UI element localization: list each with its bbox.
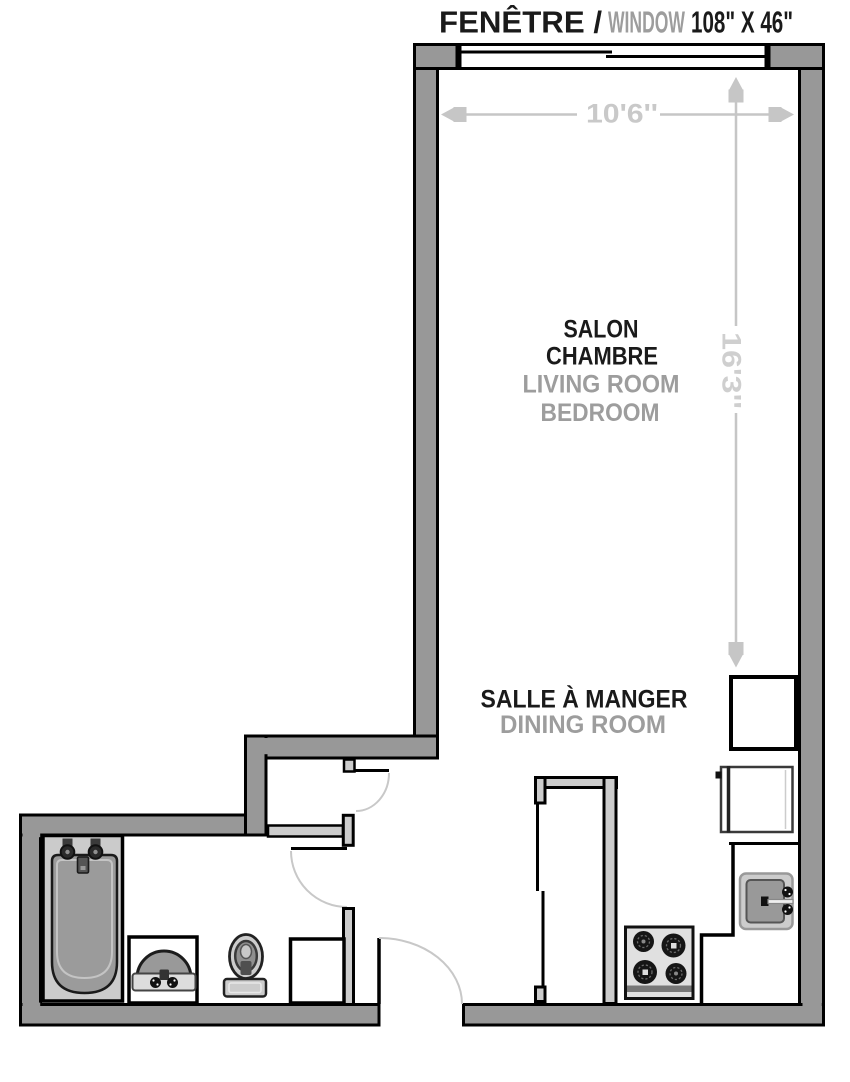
svg-text:FENÊTRE /: FENÊTRE / [439, 4, 602, 40]
svg-text:10'6'': 10'6'' [586, 99, 658, 129]
svg-text:CHAMBRE: CHAMBRE [546, 343, 658, 371]
svg-text:DINING ROOM: DINING ROOM [500, 711, 666, 739]
svg-text:16'3'': 16'3'' [717, 332, 747, 409]
svg-text:BEDROOM: BEDROOM [541, 399, 660, 427]
svg-text:LIVING ROOM: LIVING ROOM [523, 371, 680, 399]
svg-text:SALON: SALON [564, 316, 639, 344]
svg-text:WINDOW: WINDOW [608, 5, 685, 40]
svg-text:108" X 46": 108" X 46" [691, 5, 793, 40]
svg-text:SALLE À MANGER: SALLE À MANGER [481, 685, 688, 714]
